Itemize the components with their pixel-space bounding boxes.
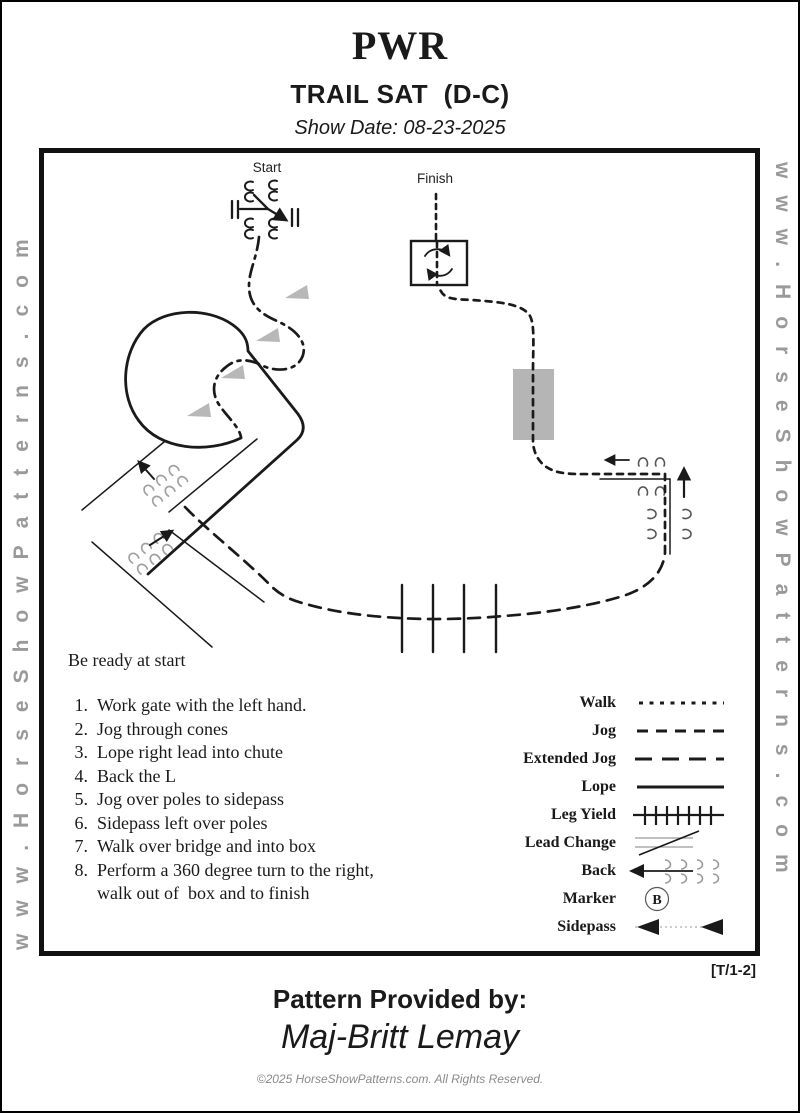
instruction-row: 6.Sidepass left over poles (64, 812, 456, 836)
leg-yield-symbol-icon (627, 802, 727, 828)
instruction-row: 3.Lope right lead into chute (64, 741, 456, 765)
sidepass-poles (600, 479, 670, 554)
legend-row-lead-change: Lead Change (488, 829, 728, 857)
jog-serpentine-path (214, 237, 304, 437)
watermark-right: www.HorseShowPatterns.com (770, 162, 794, 890)
extended-jog-symbol-icon (627, 746, 727, 772)
legend-row-jog: Jog (488, 717, 728, 745)
legend-label: Lead Change (488, 834, 616, 852)
pattern-code: [T/1-2] (711, 962, 756, 979)
class-subtitle: TRAIL SAT (D-C) (2, 79, 798, 110)
instruction-number: 8. (64, 859, 88, 906)
l-chute-rails (82, 439, 264, 647)
instruction-number: 2. (64, 718, 88, 742)
svg-text:B: B (652, 893, 661, 908)
instruction-row: 4.Back the L (64, 765, 456, 789)
provided-by-label: Pattern Provided by: (2, 984, 798, 1015)
instruction-text: Sidepass left over poles (97, 812, 267, 836)
instruction-row: 2.Jog through cones (64, 718, 456, 742)
finish-label: Finish (417, 171, 453, 186)
legend-row-leg-yield: Leg Yield (488, 801, 728, 829)
legend-label: Leg Yield (488, 806, 616, 824)
jog-poles-path (185, 507, 665, 619)
turn-box-icon (411, 241, 467, 285)
instruction-text: Jog through cones (97, 718, 228, 742)
pattern-sheet: PWR TRAIL SAT (D-C) Show Date: 08-23-202… (0, 0, 800, 1113)
instruction-row: 8.Perform a 360 degree turn to the right… (64, 859, 456, 906)
instruction-text: Lope right lead into chute (97, 741, 283, 765)
legend-label: Walk (488, 694, 616, 712)
instruction-number: 3. (64, 741, 88, 765)
legend-label: Lope (488, 778, 616, 796)
instruction-text: Jog over poles to sidepass (97, 788, 284, 812)
instruction-row: 7.Walk over bridge and into box (64, 835, 456, 859)
legend-row-sidepass: Sidepass (488, 913, 728, 941)
jog-symbol-icon (627, 718, 727, 744)
instruction-row: 5.Jog over poles to sidepass (64, 788, 456, 812)
marker-symbol-icon: B (627, 886, 727, 912)
back-marks (127, 464, 188, 575)
instructions-list: 1.Work gate with the left hand.2.Jog thr… (64, 694, 456, 906)
gate-icon (232, 181, 298, 239)
sidepass-symbol-icon (627, 914, 727, 940)
start-label: Start (253, 160, 282, 175)
instruction-number: 4. (64, 765, 88, 789)
provider-name: Maj-Britt Lemay (2, 1018, 798, 1057)
instruction-number: 7. (64, 835, 88, 859)
instruction-text: Walk over bridge and into box (97, 835, 316, 859)
instruction-text: Perform a 360 degree turn to the right, … (97, 859, 374, 906)
legend-label: Extended Jog (488, 750, 616, 768)
legend-row-marker: Marker B (488, 885, 728, 913)
instruction-number: 6. (64, 812, 88, 836)
instruction-text: Work gate with the left hand. (97, 694, 307, 718)
legend-row-lope: Lope (488, 773, 728, 801)
back-symbol-icon (627, 858, 727, 884)
legend-label: Back (488, 862, 616, 880)
legend-row-extended-jog: Extended Jog (488, 745, 728, 773)
legend-label: Marker (488, 890, 616, 908)
ready-text: Be ready at start (68, 650, 185, 671)
legend-label: Jog (488, 722, 616, 740)
page-title: PWR (2, 22, 798, 69)
legend-label: Sidepass (488, 918, 616, 936)
back-arrow-up-left (139, 462, 154, 479)
back-arrow-up-right (150, 531, 172, 545)
copyright-text: ©2025 HorseShowPatterns.com. All Rights … (2, 1072, 798, 1086)
instruction-number: 5. (64, 788, 88, 812)
show-date: Show Date: 08-23-2025 (2, 117, 798, 140)
legend-row-back: Back (488, 857, 728, 885)
walk-symbol-icon (627, 690, 727, 716)
instruction-number: 1. (64, 694, 88, 718)
instruction-text: Back the L (97, 765, 176, 789)
legend: Walk Jog Extended Jog Lope Leg Yield Lea… (488, 689, 728, 941)
watermark-left: www.HorseShowPatterns.com (10, 222, 34, 950)
legend-row-walk: Walk (488, 689, 728, 717)
lope-symbol-icon (627, 774, 727, 800)
lead-change-symbol-icon (627, 830, 727, 856)
instruction-row: 1.Work gate with the left hand. (64, 694, 456, 718)
